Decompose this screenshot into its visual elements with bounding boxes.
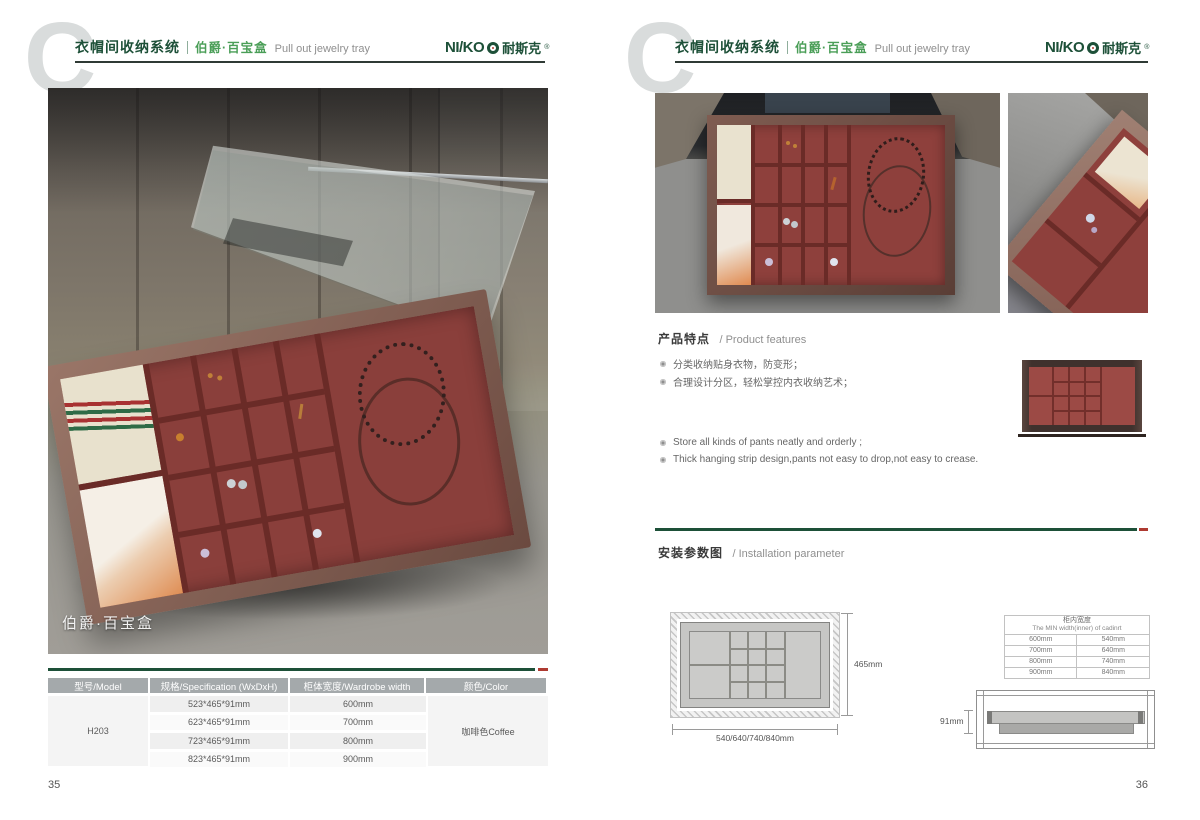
cell: 540mm: [1077, 634, 1150, 645]
panel-line: [1147, 691, 1148, 748]
divider: [1100, 367, 1102, 425]
page-left-header: 衣帽间收纳系统 伯爵·百宝盒 Pull out jewelry tray: [75, 37, 370, 57]
header-divider: [187, 41, 188, 54]
thumbnail-frame: [1022, 360, 1142, 432]
bullet-dot-icon: [660, 361, 666, 367]
dimension-line-width: [672, 729, 838, 730]
divider: [729, 648, 784, 650]
divider: [784, 632, 786, 698]
brand-logo-text: NI/KO: [1045, 39, 1084, 56]
header-product-cn: 伯爵·百宝盒: [195, 37, 268, 56]
dimension-line-height: [847, 613, 848, 716]
dimension-width-label: 540/640/740/840mm: [672, 733, 838, 743]
section-rule-red: [538, 668, 548, 671]
section-rule-green: [48, 668, 535, 671]
spec-cell: 623*465*91mm: [150, 715, 288, 731]
col-header-spec: 规格/Specification (WxDxH): [150, 678, 288, 693]
jewelry-tray-corner: [1008, 110, 1148, 313]
divider: [1029, 395, 1100, 397]
earring: [786, 141, 790, 145]
tray-area-drawing: [689, 631, 821, 699]
width-cell: 900mm: [290, 752, 426, 768]
dimension-tick: [841, 715, 853, 716]
width-cell: 700mm: [290, 715, 426, 731]
cell: 840mm: [1077, 667, 1150, 678]
thumbnail-interior: [1029, 367, 1135, 425]
feature-text: 合理设计分区，轻松掌控内衣收纳艺术；: [673, 374, 853, 389]
section-rule-red: [1139, 528, 1148, 531]
feature-item: Store all kinds of pants neatly and orde…: [660, 437, 862, 448]
scarf-compartment-top: [717, 125, 751, 199]
tray-end-cap: [987, 711, 992, 724]
header-category: 衣帽间收纳系统: [75, 37, 180, 57]
tray-frame-drawing: [680, 622, 830, 708]
features-title: 产品特点 / Product features: [658, 330, 806, 348]
flower-jewel: [830, 258, 838, 266]
feature-item: Thick hanging strip design,pants not eas…: [660, 454, 978, 465]
width-cell: 600mm: [290, 696, 426, 712]
photo-caption: 伯爵·百宝盒: [62, 612, 154, 633]
header-divider: [787, 41, 788, 54]
width-cell: 800mm: [290, 733, 426, 749]
header-product-en: Pull out jewelry tray: [275, 43, 370, 55]
cell: 740mm: [1077, 656, 1150, 667]
brand-logo: NI/KO 耐斯克 ®: [445, 38, 549, 57]
catalog-spread: C 衣帽间收纳系统 伯爵·百宝盒 Pull out jewelry tray N…: [0, 0, 1200, 820]
gold-tassel: [830, 177, 836, 190]
table-row: 700mm 640mm: [1005, 645, 1150, 656]
header-underline: [675, 61, 1148, 63]
divider: [1052, 410, 1100, 412]
flower-jewel: [312, 528, 322, 538]
page-right-header: 衣帽间收纳系统 伯爵·百宝盒 Pull out jewelry tray: [675, 37, 970, 57]
cell: 900mm: [1005, 667, 1077, 678]
table-row: 800mm 740mm: [1005, 656, 1150, 667]
features-title-cn: 产品特点: [658, 332, 710, 346]
detail-photo-corner-view: [1008, 93, 1148, 313]
feature-item: 分类收纳贴身衣物，防变形；: [660, 356, 803, 371]
detail-photo-top-view: [655, 93, 1000, 313]
jewel: [1090, 226, 1098, 234]
spec-cell: 723*465*91mm: [150, 733, 288, 749]
dimension-tick: [964, 710, 973, 711]
scarf-compartment: [1095, 136, 1148, 209]
jewelry-tray: [707, 115, 955, 295]
col-header-model: 型号/Model: [48, 678, 148, 693]
divider: [755, 243, 847, 247]
divider: [690, 664, 784, 666]
flower-jewel: [1084, 212, 1097, 225]
thumbnail-base: [1018, 434, 1146, 437]
spec-table: 型号/Model 规格/Specification (WxDxH) 柜体宽度/W…: [48, 678, 548, 693]
registered-mark: ®: [1144, 44, 1149, 51]
silver-heart: [783, 218, 790, 225]
scarf-compartment-bottom: [717, 205, 751, 285]
amber-jewel: [175, 433, 184, 442]
brand-logo-icon: [1087, 42, 1099, 54]
gold-tassel: [298, 404, 303, 419]
page-number-right: 36: [1100, 779, 1148, 791]
col-header-width: 柜体宽度/Wardrobe width: [290, 678, 424, 693]
silver-heart: [237, 479, 247, 489]
divider: [1052, 381, 1100, 383]
header-product-cn: 伯爵·百宝盒: [795, 37, 868, 56]
dimension-line-tray-height: [968, 710, 969, 734]
brand-logo-icon: [487, 42, 499, 54]
divider: [755, 203, 847, 207]
bullet-dot-icon: [660, 379, 666, 385]
silver-heart: [226, 478, 236, 488]
features-title-en: / Product features: [719, 334, 806, 346]
bullet-dot-icon: [660, 440, 666, 446]
registered-mark: ®: [544, 44, 549, 51]
spec-cell: 523*465*91mm: [150, 696, 288, 712]
header-product-en: Pull out jewelry tray: [875, 43, 970, 55]
min-width-title-cn: 柜内宽度: [1005, 617, 1149, 625]
bullet-dot-icon: [660, 457, 666, 463]
brand-logo: NI/KO 耐斯克 ®: [1045, 38, 1149, 57]
spec-table-header-row: 型号/Model 规格/Specification (WxDxH) 柜体宽度/W…: [48, 678, 548, 693]
scarf-stripes: [60, 398, 158, 431]
earring: [207, 373, 213, 379]
brand-logo-cn: 耐斯克: [502, 38, 541, 57]
lavender-jewel: [200, 548, 210, 558]
top-view-drawing: [670, 612, 840, 718]
divider: [755, 163, 847, 167]
feature-text: Thick hanging strip design,pants not eas…: [673, 454, 978, 465]
tray-interior: [1012, 128, 1148, 313]
cell: 640mm: [1077, 645, 1150, 656]
product-thumbnail: [1012, 356, 1152, 444]
min-width-title-en: The MIN width(inner) of cadinrt: [1005, 625, 1149, 632]
installation-title-en: / Installation parameter: [732, 548, 844, 560]
feature-text: Store all kinds of pants neatly and orde…: [673, 437, 862, 448]
cabinet-inner: [677, 619, 833, 711]
table-row: 900mm 840mm: [1005, 667, 1150, 678]
brand-logo-cn: 耐斯克: [1102, 38, 1141, 57]
main-product-photo: 伯爵·百宝盒: [48, 88, 548, 654]
panel-line: [977, 695, 1154, 696]
dimension-tray-height-label: 91mm: [940, 716, 964, 726]
silver-heart: [791, 221, 798, 228]
divider: [717, 199, 751, 203]
tray-profile-lower: [999, 723, 1134, 734]
dimension-height-label: 465mm: [854, 659, 882, 669]
feature-item: 合理设计分区，轻松掌控内衣收纳艺术；: [660, 374, 853, 389]
cabinet-back: [765, 93, 889, 113]
earring: [217, 375, 223, 381]
feature-text: 分类收纳贴身衣物，防变形；: [673, 356, 803, 371]
dimension-tick: [964, 733, 973, 734]
section-rule-green: [655, 528, 1137, 531]
color-cell: 咖啡色Coffee: [428, 696, 548, 766]
installation-title-cn: 安装参数图: [658, 546, 723, 560]
header-category: 衣帽间收纳系统: [675, 37, 780, 57]
min-width-table-header: 柜内宽度 The MIN width(inner) of cadinrt: [1005, 616, 1150, 635]
side-view-drawing: [976, 690, 1155, 749]
cell: 700mm: [1005, 645, 1077, 656]
divider: [729, 681, 784, 683]
installation-title: 安装参数图 / Installation parameter: [658, 544, 844, 562]
dimension-tick: [841, 613, 853, 614]
tray-end-cap: [1138, 711, 1143, 724]
col-header-color: 颜色/Color: [426, 678, 546, 693]
panel-line: [977, 743, 1154, 744]
lavender-jewel: [765, 258, 773, 266]
table-row: 600mm 540mm: [1005, 634, 1150, 645]
min-width-table: 柜内宽度 The MIN width(inner) of cadinrt 600…: [1004, 615, 1150, 679]
tray-interior: [717, 125, 945, 285]
spec-cell: 823*465*91mm: [150, 752, 288, 768]
panel-line: [983, 691, 984, 748]
earring: [793, 144, 797, 148]
header-underline: [75, 61, 545, 63]
model-cell: H203: [48, 696, 148, 766]
divider: [847, 125, 851, 285]
cell: 600mm: [1005, 634, 1077, 645]
page-number-left: 35: [48, 779, 60, 791]
cell: 800mm: [1005, 656, 1077, 667]
brand-logo-text: NI/KO: [445, 39, 484, 56]
